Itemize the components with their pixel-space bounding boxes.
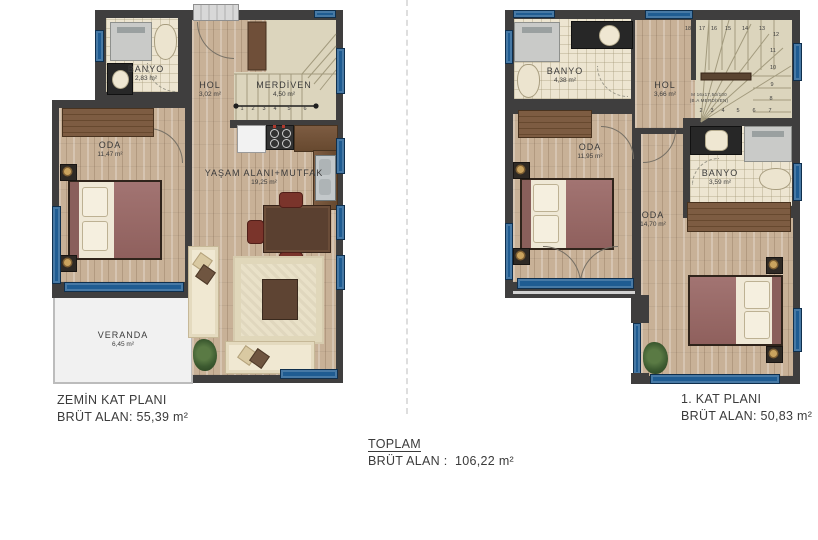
fridge (237, 125, 266, 153)
wall-pillar (631, 373, 649, 384)
bed-pillow (82, 221, 108, 251)
room-name: BANYO (689, 168, 751, 178)
stair-step-number: 8 (767, 96, 775, 102)
burner-icon (282, 129, 291, 138)
shower-tray (514, 22, 560, 62)
stove (266, 125, 294, 150)
floor-plan-sheet: VERANDA 6,45 m² (0, 0, 818, 540)
room-label-oda: ODA 11,47 m² (80, 140, 140, 158)
room-name: HOL (188, 80, 232, 90)
lamp-icon (64, 168, 71, 175)
stair-step-number: 5 (285, 106, 293, 112)
bed-pillow (533, 184, 559, 212)
wardrobe (62, 108, 154, 137)
floor-plan-first: M 16x17,50/100 (B.A MERDİVEN) 18 17 16 1… (505, 8, 800, 384)
bed-blanket (114, 182, 160, 258)
room-label-banyo: BANYO 2,83 m² (114, 64, 178, 82)
window (505, 30, 513, 64)
plant (193, 339, 217, 371)
sofa (188, 246, 219, 338)
window (64, 282, 184, 292)
window (314, 10, 336, 18)
nightstand-lamp (766, 257, 783, 274)
stair-step-number: 3 (260, 106, 268, 112)
first-floor-caption: 1. KAT PLANI BRÜT ALAN: 50,83 m² (681, 391, 812, 425)
window (95, 30, 104, 62)
window (336, 48, 345, 94)
nightstand-lamp (766, 346, 783, 363)
room-area: 4,38 m² (533, 77, 597, 84)
room-name: BANYO (533, 66, 597, 76)
nightstand-lamp (513, 162, 530, 179)
balcony-ledge (513, 291, 635, 294)
bed-headboard (70, 182, 79, 258)
kitchen-counter (294, 125, 338, 152)
window (336, 205, 345, 240)
bed-headboard (772, 277, 781, 344)
towel-bar (522, 27, 553, 33)
bed (688, 275, 783, 346)
room-name: BANYO (114, 64, 178, 74)
room-area: 14,70 m² (623, 221, 683, 228)
room-label-hol: HOL 3,02 m² (188, 80, 232, 98)
bed-pillow (744, 311, 770, 339)
bed-headboard (522, 180, 531, 248)
total-label: TOPLAM (368, 436, 514, 453)
bed-blanket (566, 180, 612, 248)
lamp-icon (770, 350, 777, 357)
lamp-icon (517, 166, 524, 173)
room-name: YAŞAM ALANI+MUTFAK (199, 168, 329, 178)
plan-gross-area: BRÜT ALAN: 55,39 m² (57, 409, 188, 426)
stair-step-number: 10 (769, 65, 777, 71)
bed-pillow (744, 281, 770, 309)
ground-floor-caption: ZEMİN KAT PLANI BRÜT ALAN: 55,39 m² (57, 392, 188, 426)
room-label-yasam-alani: YAŞAM ALANI+MUTFAK 19,25 m² (199, 168, 329, 186)
lamp-icon (517, 252, 524, 259)
room-label-hol: HOL 3,66 m² (635, 80, 695, 98)
wardrobe (518, 110, 592, 138)
wall-pillar (631, 295, 649, 323)
window (517, 278, 634, 289)
bed-pillow (82, 187, 108, 217)
room-name: ODA (623, 210, 683, 220)
room-area: 3,66 m² (635, 91, 695, 98)
burner-icon (270, 139, 279, 148)
window (793, 308, 802, 352)
stair-step-number: 2 (697, 108, 705, 114)
room-name: MERDİVEN (248, 80, 320, 90)
hall-floor (635, 20, 697, 128)
room-label-banyo-orta: BANYO 3,59 m² (689, 168, 751, 186)
stair-step-number: 15 (724, 26, 732, 32)
room-name: HOL (635, 80, 695, 90)
dining-table (263, 205, 331, 253)
total-caption: TOPLAM BRÜT ALAN : 106,22 m² (368, 436, 514, 470)
dining-chair (279, 192, 303, 208)
toilet (154, 24, 177, 60)
bed-pillow (533, 215, 559, 243)
room-label-oda-alt: ODA 14,70 m² (623, 210, 683, 228)
window (280, 369, 338, 379)
burner-icon (270, 129, 279, 138)
stair-step-number: 6 (750, 108, 758, 114)
window (793, 43, 802, 81)
sink-vanity (690, 126, 742, 155)
stair-step-number: 3 (708, 108, 716, 114)
stair-step-number: 18 (684, 26, 692, 32)
lamp-icon (64, 259, 71, 266)
stove-knob-icon (273, 125, 276, 128)
stair-step-number: 1 (238, 106, 246, 112)
total-gross-area: BRÜT ALAN : 106,22 m² (368, 453, 514, 470)
stair-step-number: 5 (734, 108, 742, 114)
stair-step-number: 7 (766, 108, 774, 114)
room-label-merdiven: MERDİVEN 4,50 m² (248, 80, 320, 98)
plan-title: ZEMİN KAT PLANI (57, 392, 188, 409)
window (336, 255, 345, 290)
room-area: 6,45 m² (55, 341, 191, 348)
shower-tray (744, 126, 792, 162)
veranda-floor: VERANDA 6,45 m² (53, 298, 193, 384)
stair-step-number: 17 (698, 26, 706, 32)
room-name: ODA (560, 142, 620, 152)
room-area: 3,02 m² (188, 91, 232, 98)
stair-step-number: 14 (741, 26, 749, 32)
room-area: 2,83 m² (114, 75, 178, 82)
room-label-veranda: VERANDA 6,45 m² (55, 330, 191, 348)
room-area: 3,59 m² (689, 179, 751, 186)
lamp-icon (770, 261, 777, 268)
window (650, 374, 780, 384)
sink-basin (705, 130, 728, 151)
stair-step-number: 12 (772, 32, 780, 38)
stair-step-number: 2 (249, 106, 257, 112)
window (336, 138, 345, 174)
window (52, 206, 61, 284)
wardrobe (687, 202, 791, 232)
nightstand-lamp (60, 164, 77, 181)
plant (643, 342, 668, 374)
room-label-oda-sol: ODA 11,95 m² (560, 142, 620, 160)
floor-plan-ground: VERANDA 6,45 m² (52, 8, 343, 384)
bed (520, 178, 614, 250)
nightstand-lamp (60, 255, 77, 272)
stair-step-number: 4 (271, 106, 279, 112)
window (505, 223, 513, 280)
room-area: 11,95 m² (560, 153, 620, 160)
window (793, 163, 802, 201)
plan-title: 1. KAT PLANI (681, 391, 812, 408)
plan-gross-area: BRÜT ALAN: 50,83 m² (681, 408, 812, 425)
bed-blanket (690, 277, 736, 344)
towel-bar (752, 131, 784, 137)
room-label-banyo-ust: BANYO 4,38 m² (533, 66, 597, 84)
stair-step-number: 4 (719, 108, 727, 114)
coffee-table (262, 279, 298, 320)
nightstand-lamp (513, 248, 530, 265)
sink-vanity (571, 21, 633, 49)
dining-chair (247, 220, 264, 244)
room-area: 11,47 m² (80, 151, 140, 158)
window (633, 323, 641, 375)
stair-step-number: 16 (710, 26, 718, 32)
burner-icon (282, 139, 291, 148)
room-area: 4,50 m² (248, 91, 320, 98)
bed (68, 180, 162, 260)
stair-step-number: 13 (758, 26, 766, 32)
stair-annotation-line: (B.A MERDİVEN) (673, 98, 745, 104)
room-name: ODA (80, 140, 140, 150)
room-area: 19,25 m² (199, 179, 329, 186)
sink-basin (599, 25, 620, 46)
stair-step-number: 6 (301, 106, 309, 112)
plan-divider-dashed-line (406, 0, 408, 414)
window (645, 10, 693, 19)
toilet (759, 168, 791, 190)
window (513, 10, 555, 18)
stair-step-number: 9 (768, 82, 776, 88)
room-name: VERANDA (55, 330, 191, 340)
shower-tray (110, 22, 152, 61)
towel-bar (117, 27, 145, 33)
stair-step-number: 11 (769, 48, 777, 54)
